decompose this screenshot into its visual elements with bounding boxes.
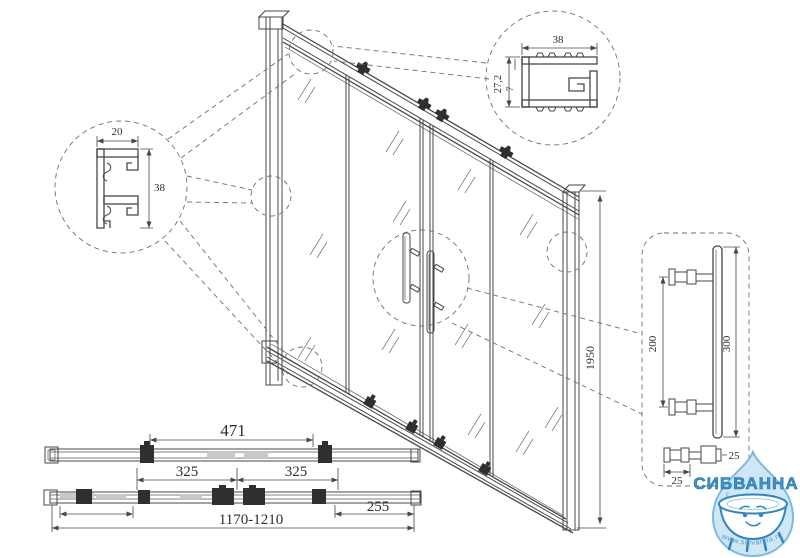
dim-overall-width: 1170-1210: [219, 512, 283, 528]
dim-door-width-left: 325: [176, 464, 199, 480]
mascot-eye-right: [759, 513, 763, 517]
dim-handle-length: 300: [721, 335, 733, 352]
dim-top-rail-width: 38: [553, 34, 565, 46]
brand-name: СИБВАННА: [693, 474, 798, 493]
dim-roller-spacing: 471: [220, 421, 246, 440]
dim-handle-mount-spacing: 200: [647, 335, 659, 352]
dim-handle-bar-dia: 25: [729, 450, 741, 462]
dim-top-rail-height: 27,2: [493, 75, 504, 93]
dim-door-width-right: 325: [285, 464, 308, 480]
dim-wall-profile-width: 20: [112, 126, 124, 138]
dim-wall-profile-depth: 38: [154, 182, 166, 194]
dim-door-height: 1950: [583, 346, 597, 370]
dim-handle-knob-dia: 25: [672, 475, 684, 487]
technical-drawing-page: 1950 20 38: [0, 0, 800, 558]
mascot-eye-left: [743, 513, 747, 517]
shower-door-technical-drawing: 1950 20 38: [0, 0, 800, 558]
dim-end-panel-width: 255: [367, 499, 390, 515]
dim-top-rail-lip: 7: [505, 86, 515, 91]
